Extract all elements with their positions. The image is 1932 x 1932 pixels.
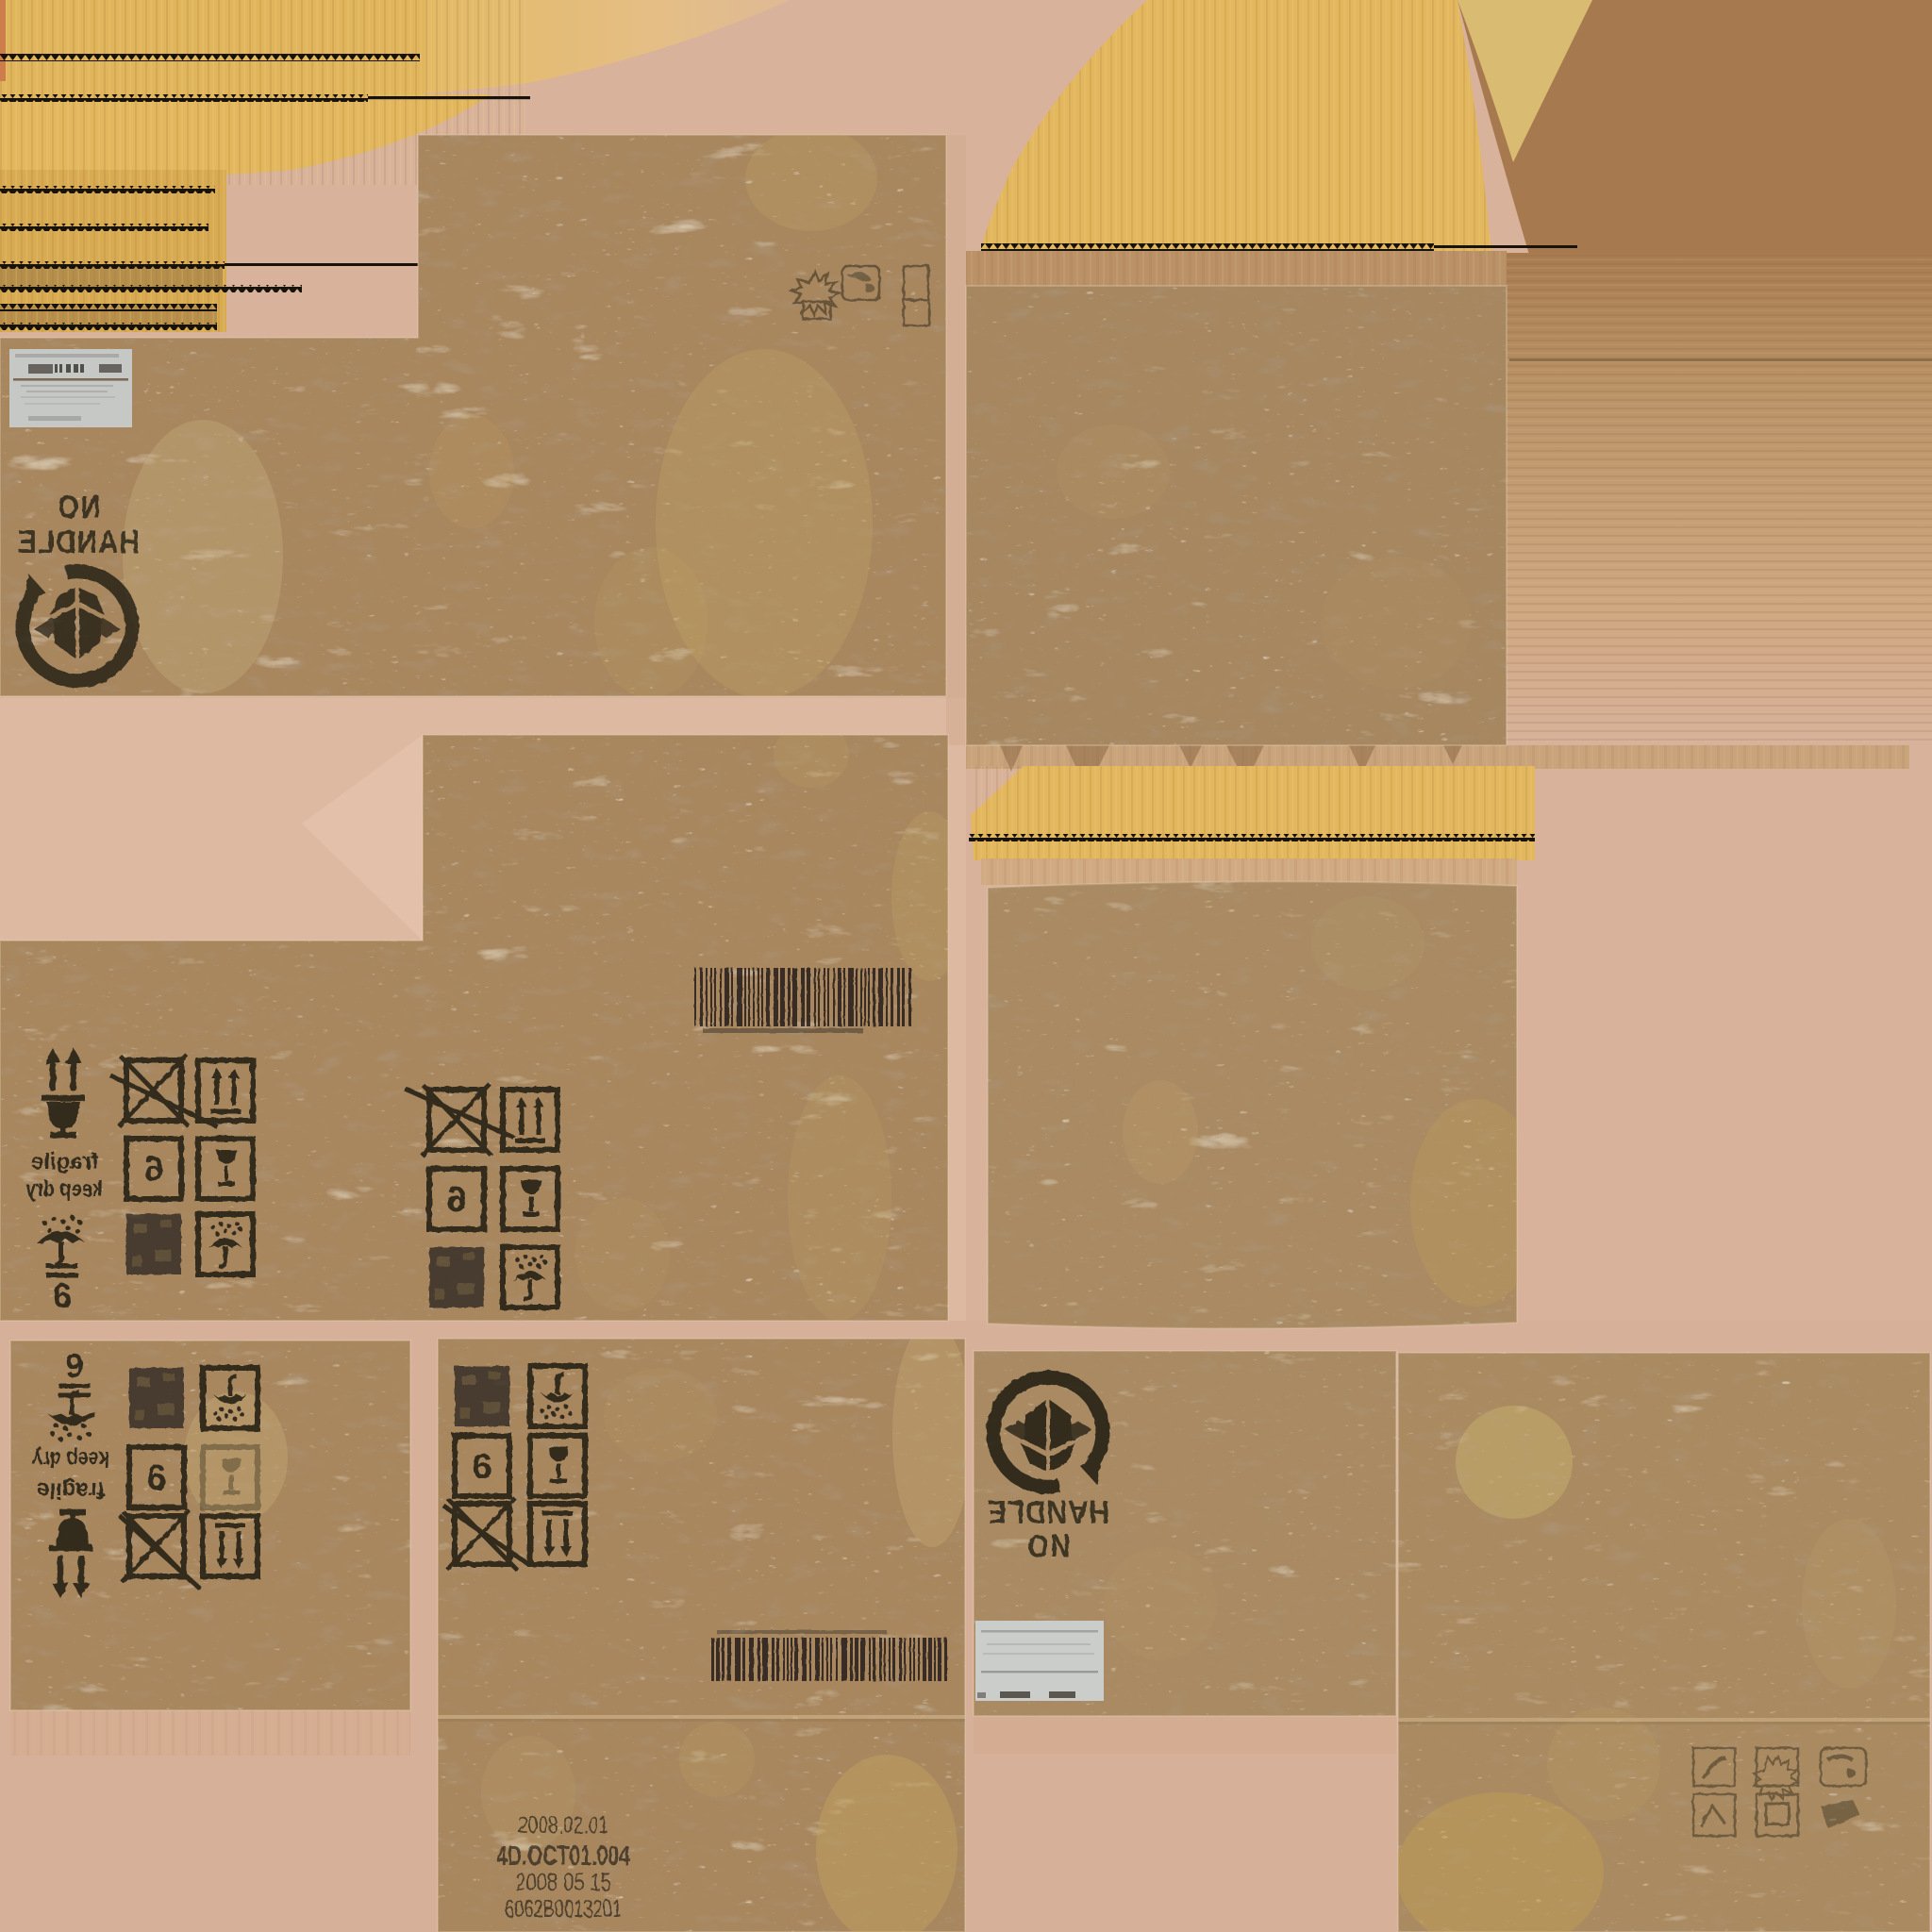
svg-text:2008.02.01: 2008.02.01 (518, 1812, 608, 1839)
svg-text:6: 6 (446, 1180, 466, 1220)
svg-text:HANDLE: HANDLE (987, 1493, 1109, 1529)
svg-text:6: 6 (143, 1150, 163, 1190)
svg-text:HANDLE: HANDLE (17, 525, 140, 560)
svg-text:keep dry: keep dry (25, 1176, 103, 1202)
svg-text:2008 05 15: 2008 05 15 (515, 1868, 611, 1896)
svg-text:fragile: fragile (37, 1477, 105, 1503)
svg-text:keep dry: keep dry (31, 1446, 109, 1472)
svg-text:6: 6 (146, 1458, 166, 1498)
svg-text:6: 6 (472, 1447, 491, 1487)
svg-text:NO: NO (1026, 1527, 1071, 1563)
svg-text:NO: NO (57, 490, 101, 525)
svg-text:6062B0013201: 6062B0013201 (505, 1894, 622, 1923)
svg-text:fragile: fragile (31, 1149, 99, 1174)
